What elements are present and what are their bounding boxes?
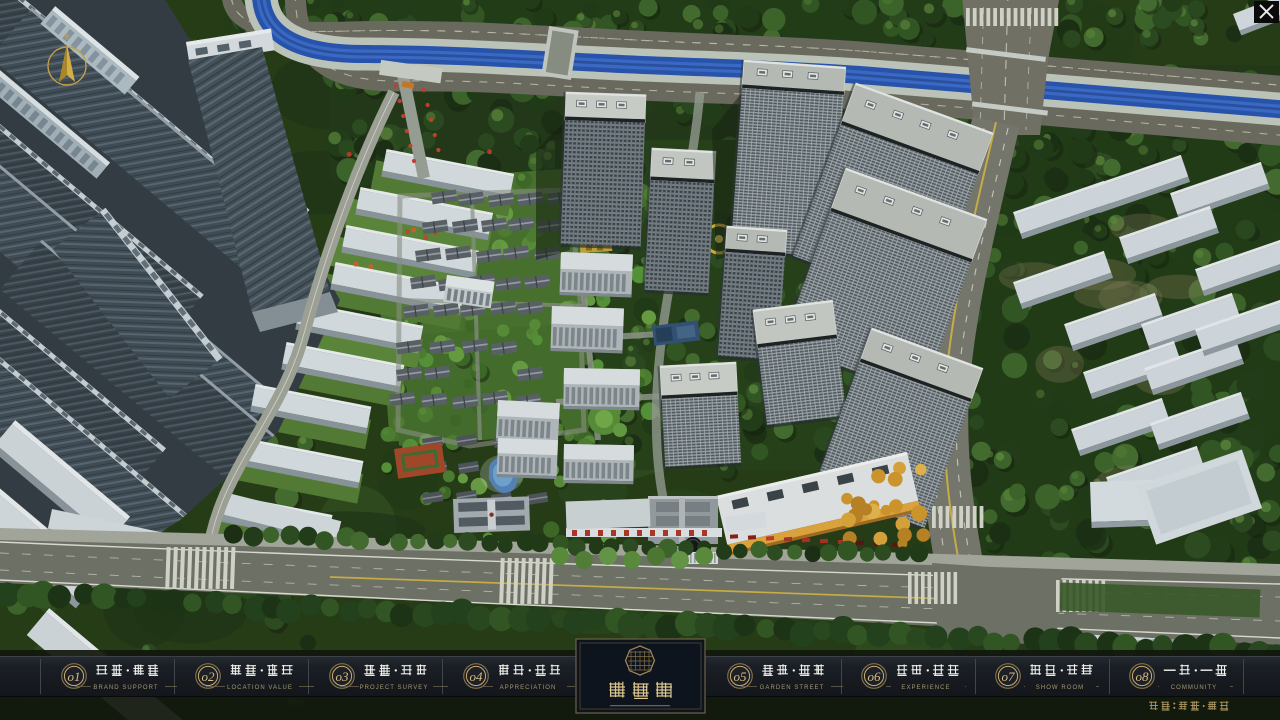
svg-text:APPRECIATION: APPRECIATION — [500, 685, 557, 691]
svg-text:BRAND SUPPORT: BRAND SUPPORT — [93, 685, 158, 691]
svg-text:GARDEN STREET: GARDEN STREET — [760, 685, 825, 691]
svg-text:o5: o5 — [734, 669, 748, 684]
svg-text:o4: o4 — [470, 669, 484, 684]
svg-text:o6: o6 — [868, 669, 882, 684]
svg-text:o8: o8 — [1136, 669, 1150, 684]
svg-text:EXPERIENCE: EXPERIENCE — [901, 685, 950, 691]
svg-text:LOCATION VALUE: LOCATION VALUE — [227, 685, 293, 691]
svg-text:SHOW ROOM: SHOW ROOM — [1036, 685, 1084, 691]
svg-text:PROJECT SURVEY: PROJECT SURVEY — [360, 685, 429, 691]
svg-text:o7: o7 — [1002, 669, 1016, 684]
svg-text:o1: o1 — [68, 669, 81, 684]
svg-text:o2: o2 — [202, 669, 216, 684]
svg-text:o3: o3 — [336, 669, 350, 684]
svg-text:COMMUNITY: COMMUNITY — [1171, 685, 1217, 691]
